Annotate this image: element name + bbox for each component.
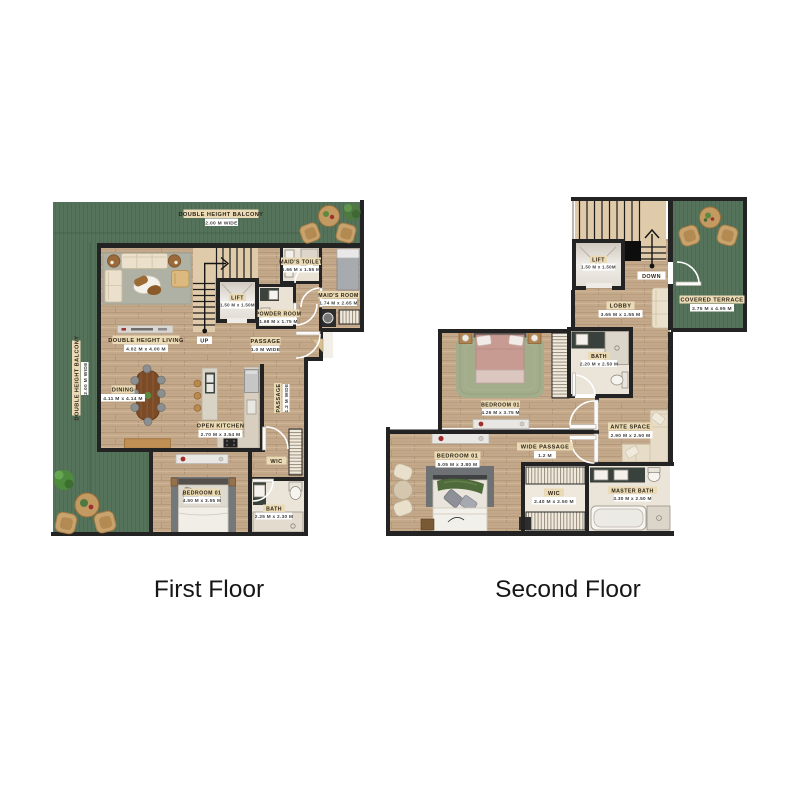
svg-text:1.50 M x 1.50M: 1.50 M x 1.50M bbox=[220, 303, 255, 308]
svg-text:POWDER ROOM: POWDER ROOM bbox=[256, 311, 302, 317]
svg-text:3.30 M x 2.50 M: 3.30 M x 2.50 M bbox=[613, 496, 651, 501]
svg-text:COVERED TERRACE: COVERED TERRACE bbox=[680, 298, 743, 304]
svg-text:DOWN: DOWN bbox=[642, 274, 661, 280]
svg-text:BEDROOM 01: BEDROOM 01 bbox=[437, 454, 479, 460]
svg-text:2.00 M WIDE: 2.00 M WIDE bbox=[83, 362, 89, 395]
svg-text:UP: UP bbox=[200, 338, 208, 344]
svg-text:DOUBLE HEIGHT LIVING: DOUBLE HEIGHT LIVING bbox=[108, 338, 184, 344]
svg-text:MASTER BATH: MASTER BATH bbox=[611, 488, 653, 494]
svg-text:DOUBLE HEIGHT BALCONY: DOUBLE HEIGHT BALCONY bbox=[75, 336, 81, 421]
svg-text:2.25 M x 2.30 M: 2.25 M x 2.30 M bbox=[255, 514, 293, 519]
svg-text:MAID'S TOILET: MAID'S TOILET bbox=[279, 259, 323, 265]
svg-text:BATH: BATH bbox=[266, 506, 282, 512]
svg-text:4.02 M x 4.00 M: 4.02 M x 4.00 M bbox=[126, 346, 166, 352]
svg-text:2.20 M x 2.50 M: 2.20 M x 2.50 M bbox=[580, 361, 618, 366]
svg-text:PASSAGE: PASSAGE bbox=[276, 383, 282, 412]
svg-text:4.11 M x 4.14 M: 4.11 M x 4.14 M bbox=[103, 396, 143, 402]
svg-text:1.2 M: 1.2 M bbox=[538, 453, 552, 459]
svg-text:WIC: WIC bbox=[548, 491, 560, 497]
svg-text:1.0 M WIDE: 1.0 M WIDE bbox=[251, 347, 281, 353]
svg-text:ANTE SPACE: ANTE SPACE bbox=[610, 425, 650, 431]
svg-text:1.2 M WIDE: 1.2 M WIDE bbox=[284, 383, 290, 412]
svg-text:BEDROOM 01: BEDROOM 01 bbox=[183, 490, 222, 496]
svg-text:1.50 M x 1.50M: 1.50 M x 1.50M bbox=[581, 265, 616, 270]
svg-text:LOBBY: LOBBY bbox=[610, 304, 632, 310]
svg-text:3.65 M x 1.55 M: 3.65 M x 1.55 M bbox=[601, 312, 641, 318]
svg-text:2.75 M x 4.95 M: 2.75 M x 4.95 M bbox=[692, 306, 732, 312]
svg-text:MAID'S ROOM: MAID'S ROOM bbox=[318, 293, 358, 299]
svg-text:DINING: DINING bbox=[112, 388, 134, 394]
svg-text:1.68 M x 1.75 M: 1.68 M x 1.75 M bbox=[259, 319, 297, 324]
svg-text:2.90 M x 2.50 M: 2.90 M x 2.50 M bbox=[611, 433, 651, 439]
svg-text:2.00 M WIDE: 2.00 M WIDE bbox=[205, 220, 238, 226]
svg-text:BEDROOM 01: BEDROOM 01 bbox=[481, 402, 520, 408]
svg-text:WIDE PASSAGE: WIDE PASSAGE bbox=[521, 445, 570, 451]
svg-text:1.74 M x 2.65 M: 1.74 M x 2.65 M bbox=[319, 300, 357, 305]
svg-text:WIC: WIC bbox=[270, 459, 282, 465]
svg-text:1.66 M x 1.55 M: 1.66 M x 1.55 M bbox=[282, 267, 320, 272]
svg-text:4.50 M x 3.55 M: 4.50 M x 3.55 M bbox=[183, 498, 221, 503]
svg-text:2.70 M x 3.54 M: 2.70 M x 3.54 M bbox=[201, 432, 241, 438]
svg-text:BATH: BATH bbox=[591, 354, 607, 360]
svg-text:5.05 M x 3.80 M: 5.05 M x 3.80 M bbox=[438, 462, 478, 468]
svg-text:4.26 M x 3.75 M: 4.26 M x 3.75 M bbox=[481, 410, 519, 415]
svg-text:LIFT: LIFT bbox=[592, 257, 605, 263]
svg-text:DOUBLE HEIGHT BALCONY: DOUBLE HEIGHT BALCONY bbox=[179, 212, 264, 218]
svg-text:First Floor: First Floor bbox=[154, 576, 264, 603]
svg-text:PASSAGE: PASSAGE bbox=[250, 339, 280, 345]
svg-text:Second Floor: Second Floor bbox=[495, 576, 641, 603]
svg-text:LIFT: LIFT bbox=[231, 295, 244, 301]
svg-text:OPEN KITCHEN: OPEN KITCHEN bbox=[197, 424, 245, 430]
svg-text:2.40 M x 2.50 M: 2.40 M x 2.50 M bbox=[534, 499, 574, 505]
